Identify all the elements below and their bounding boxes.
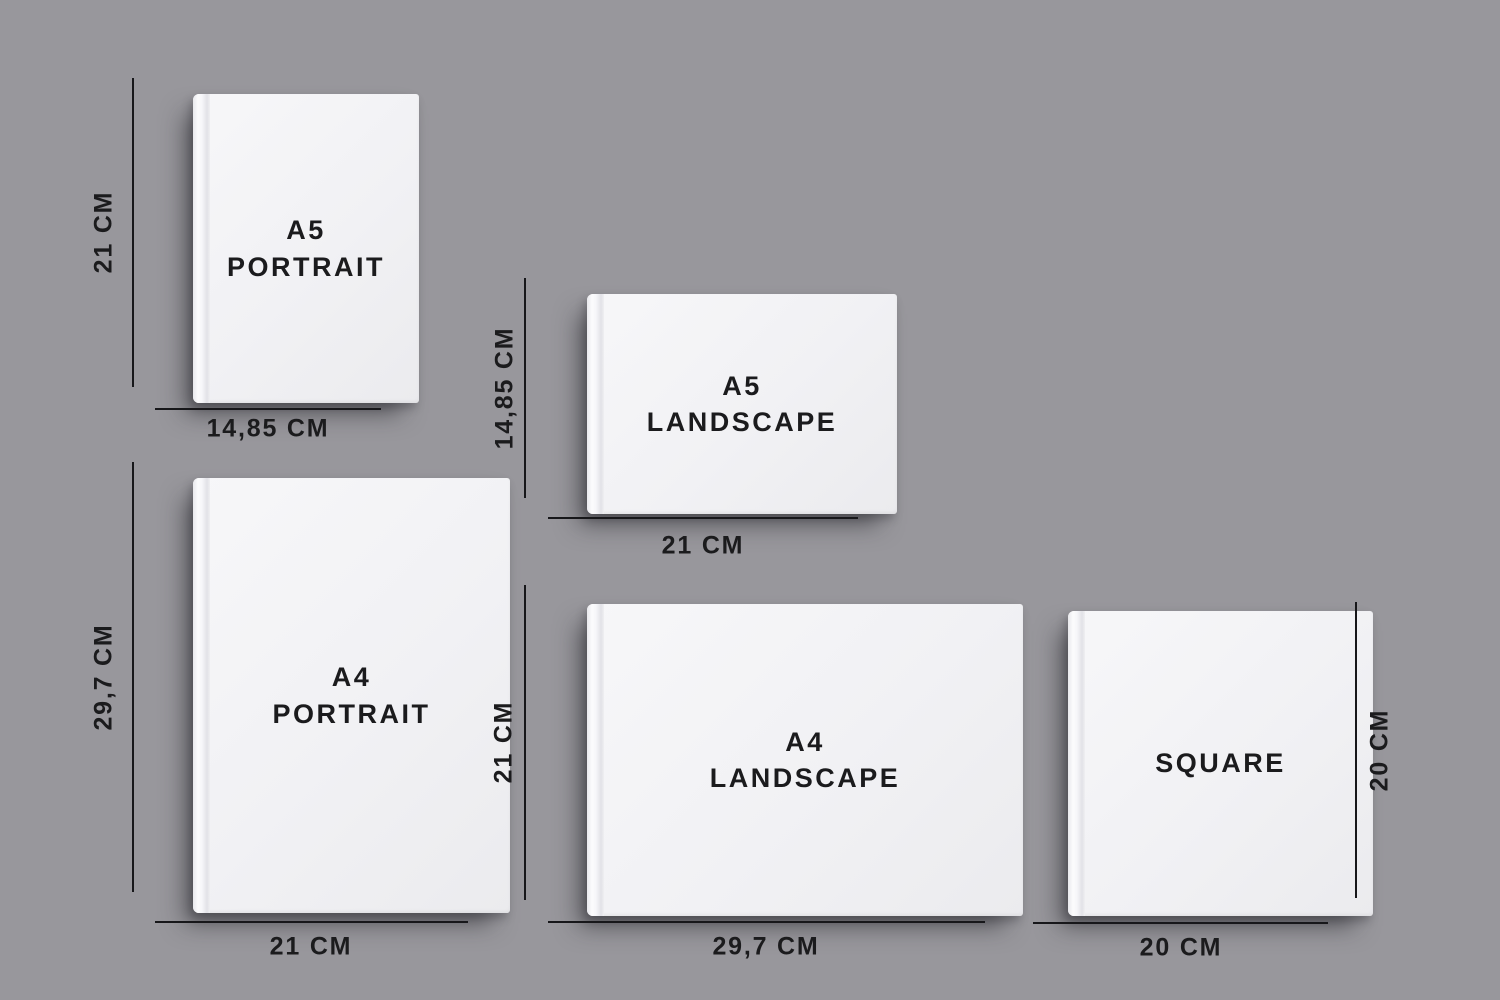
dimension-line-a4-landscape-height [524, 585, 526, 900]
book-square-title: SQUARE [1155, 745, 1286, 781]
book-title-line: A5 [647, 368, 838, 404]
dimension-label-square-height: 20 CM [1366, 709, 1395, 792]
book-title-line: PORTRAIT [227, 249, 385, 285]
dimension-label-a4-landscape-width: 29,7 CM [712, 933, 819, 962]
book-title-line: LANDSCAPE [647, 404, 838, 440]
book-a5-portrait-title: A5 PORTRAIT [227, 212, 385, 285]
book-square: SQUARE [1068, 611, 1373, 916]
size-comparison-diagram: A5 PORTRAIT 21 CM 14,85 CM A5 LANDSCAPE … [0, 0, 1500, 1000]
dimension-line-a5-portrait-height [132, 78, 134, 387]
book-a4-portrait-title: A4 PORTRAIT [273, 659, 431, 732]
book-title-line: A4 [710, 724, 901, 760]
dimension-line-a5-landscape-height [524, 278, 526, 498]
dimension-label-a5-landscape-width: 21 CM [662, 532, 745, 561]
dimension-line-a5-landscape-width [548, 517, 858, 519]
book-a5-portrait: A5 PORTRAIT [193, 94, 419, 403]
dimension-label-a4-portrait-height: 29,7 CM [90, 623, 119, 730]
book-a4-portrait: A4 PORTRAIT [193, 478, 510, 913]
book-a4-landscape-title: A4 LANDSCAPE [710, 724, 901, 797]
book-title-line: LANDSCAPE [710, 760, 901, 796]
dimension-label-a4-portrait-width: 21 CM [270, 933, 353, 962]
book-a4-landscape: A4 LANDSCAPE [587, 604, 1023, 916]
book-title-line: SQUARE [1155, 745, 1286, 781]
book-a5-landscape-title: A5 LANDSCAPE [647, 368, 838, 441]
book-title-line: PORTRAIT [273, 696, 431, 732]
dimension-line-a5-portrait-width [155, 408, 381, 410]
dimension-label-a5-landscape-height: 14,85 CM [491, 327, 520, 450]
dimension-line-square-height [1355, 602, 1357, 898]
dimension-label-a4-landscape-height: 21 CM [490, 701, 519, 784]
dimension-label-a5-portrait-height: 21 CM [90, 191, 119, 274]
book-title-line: A4 [273, 659, 431, 695]
dimension-label-a5-portrait-width: 14,85 CM [207, 415, 330, 444]
dimension-line-a4-portrait-width [155, 921, 468, 923]
dimension-line-a4-landscape-width [548, 921, 985, 923]
dimension-label-square-width: 20 CM [1140, 934, 1223, 963]
book-a5-landscape: A5 LANDSCAPE [587, 294, 897, 514]
dimension-line-square-width [1033, 922, 1328, 924]
dimension-line-a4-portrait-height [132, 462, 134, 892]
book-title-line: A5 [227, 212, 385, 248]
